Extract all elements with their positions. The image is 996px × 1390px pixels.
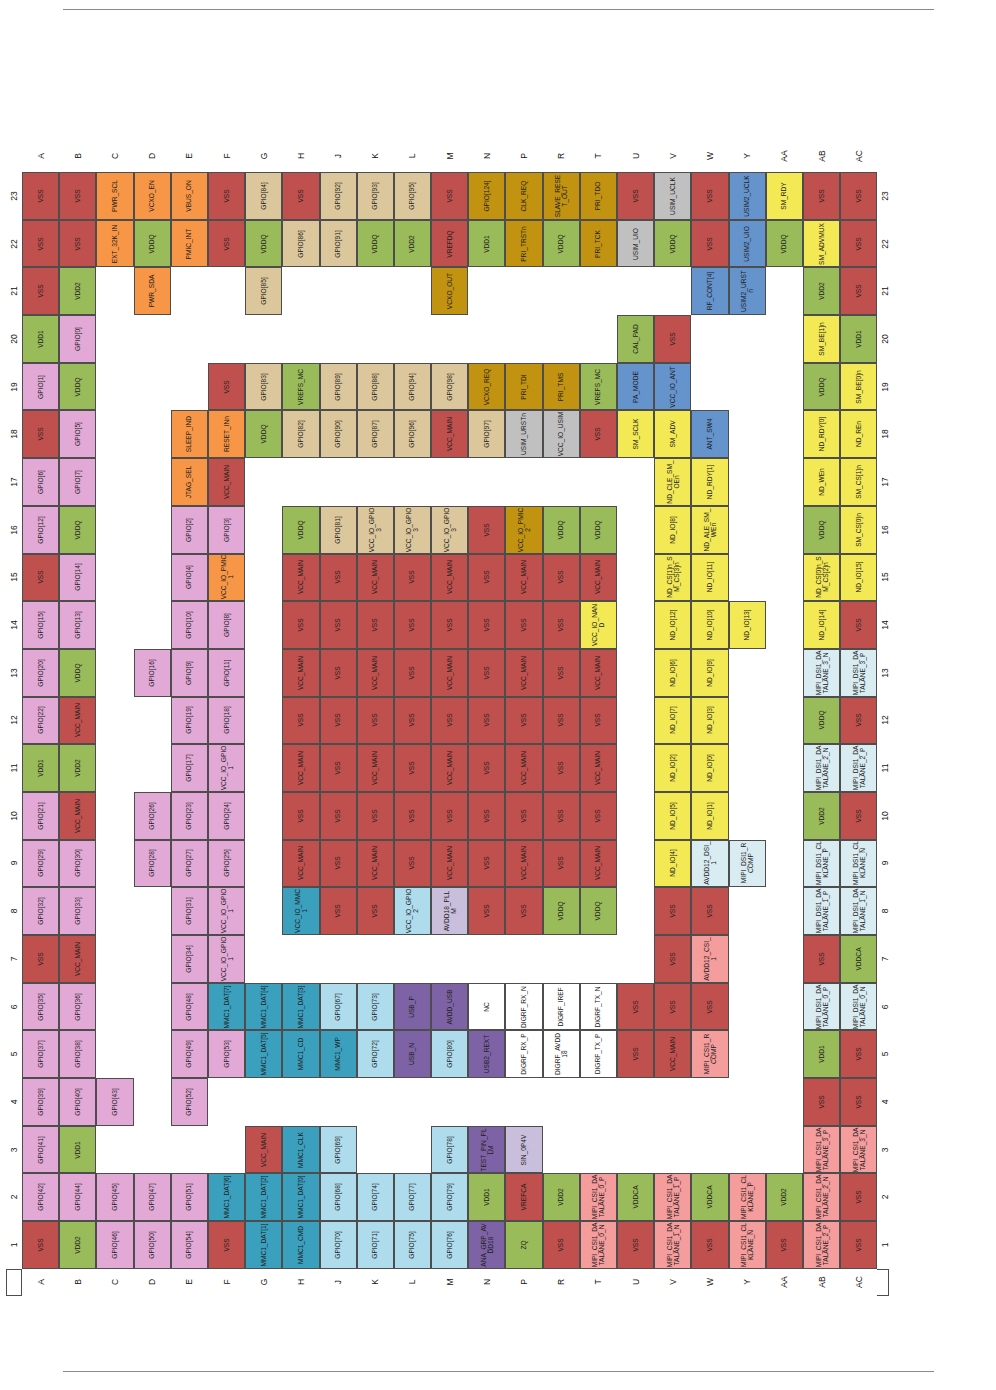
- ball-R23-label: SLAVE_RESET_OUT: [554, 173, 569, 218]
- ball-G22: VDDQ: [245, 220, 282, 268]
- ball-W5-label: MIPI_CSI1_RCOMP: [703, 1032, 718, 1077]
- ball-T2: MIPI_CSI1_DATALANE_0_P: [580, 1173, 617, 1221]
- row-header-left-12-label: 12: [10, 716, 19, 725]
- ball-V15-label: ND_CS[1]n_SM_CS[3]n: [665, 555, 680, 600]
- ball-K6: GPIO[73]: [357, 983, 394, 1031]
- ball-J13-label: VSS: [334, 650, 341, 695]
- ball-K5: GPIO[72]: [357, 1030, 394, 1078]
- ball-T15-label: VCC_MAIN: [595, 555, 602, 600]
- col-header-top-AA-label: AA: [780, 150, 789, 161]
- ball-V13: ND_IO[6]: [654, 649, 691, 697]
- ball-C22-label: EXT_32K_IN: [111, 221, 118, 266]
- ball-B23: VSS: [59, 172, 96, 220]
- ball-D9: GPIO[28]: [134, 840, 171, 888]
- col-header-top-N-label: N: [483, 153, 492, 159]
- col-header-bottom-A: A: [22, 1269, 59, 1296]
- ball-P11: VCC_MAIN: [505, 744, 542, 792]
- ball-W8-label: VSS: [706, 889, 713, 934]
- ball-C23: PWR_SCL: [96, 172, 133, 220]
- ball-AC6-label: MIPI_DSI1_DATALANE_0_N: [851, 984, 866, 1029]
- ball-V17: ND_CLE_SM_OEn: [654, 458, 691, 506]
- ball-T9: VCC_MAIN: [580, 840, 617, 888]
- col-header-top-T: T: [580, 140, 617, 172]
- ball-L5-label: USB_N: [409, 1032, 416, 1077]
- ball-D2: GPIO[47]: [134, 1173, 171, 1221]
- row-header-right-2: 2: [877, 1173, 892, 1221]
- col-header-bottom-AA-label: AA: [780, 1277, 789, 1288]
- ball-Y2-label: MIPI_CSI1_CLKLANE_P: [740, 1175, 755, 1220]
- ball-T13: VCC_MAIN: [580, 649, 617, 697]
- ball-F14: GPIO[8]: [208, 601, 245, 649]
- ball-Y9: MIPI_DSI1_RCOMP: [729, 840, 766, 888]
- ball-N5: USB2_REXT: [468, 1030, 505, 1078]
- ball-F14-label: GPIO[8]: [223, 603, 230, 648]
- col-header-top-E-label: E: [185, 153, 194, 159]
- ball-P1-label: ZQ: [520, 1222, 527, 1267]
- row-header-right-4: 4: [877, 1078, 892, 1126]
- ball-B21: VDD2: [59, 267, 96, 315]
- ball-H12: VSS: [282, 697, 319, 745]
- ball-H15-label: VCC_MAIN: [297, 555, 304, 600]
- col-header-bottom-V-label: V: [669, 1279, 678, 1285]
- ball-AB23: VSS: [803, 172, 840, 220]
- ballout-grid: AABBCCDDEEFFGGHHJJKKLLMMNNPPRRTTUUVVWWYY…: [6, 140, 892, 1296]
- ball-E16-label: GPIO[2]: [186, 507, 193, 552]
- ball-R12: VSS: [543, 697, 580, 745]
- ball-AB11-label: MIPI_DSI1_DATALANE_2_N: [814, 746, 829, 791]
- ball-L10: VSS: [394, 792, 431, 840]
- col-header-top-G: G: [245, 140, 282, 172]
- ball-H1-label: MMC1_CMD: [297, 1222, 304, 1267]
- ball-T13-label: VCC_MAIN: [595, 650, 602, 695]
- ball-L23: GPIO[95]: [394, 172, 431, 220]
- ball-E2: GPIO[51]: [171, 1173, 208, 1221]
- ball-A3: GPIO[41]: [22, 1126, 59, 1174]
- ball-F22-label: VSS: [223, 221, 230, 266]
- row-header-right-17: 17: [877, 458, 892, 506]
- ball-B9-label: GPIO[30]: [74, 841, 81, 886]
- col-header-top-U: U: [617, 140, 654, 172]
- ball-U5: VSS: [617, 1030, 654, 1078]
- ball-L12: VSS: [394, 697, 431, 745]
- ball-W23: VSS: [691, 172, 728, 220]
- ball-K11-label: VCC_MAIN: [372, 746, 379, 791]
- ball-P5-label: DIGRF_RX_P: [520, 1032, 527, 1077]
- ball-A5: GPIO[37]: [22, 1030, 59, 1078]
- ball-V12: ND_IO[7]: [654, 697, 691, 745]
- ball-AB3: MIPI_CSI1_DATALANE_3_P: [803, 1126, 840, 1174]
- ball-L18: GPIO[96]: [394, 410, 431, 458]
- ball-F5-label: GPIO[53]: [223, 1032, 230, 1077]
- ball-K9-label: VCC_MAIN: [372, 841, 379, 886]
- ball-A8: GPIO[32]: [22, 887, 59, 935]
- ball-W15: ND_IO[11]: [691, 554, 728, 602]
- ball-B3: VDD1: [59, 1126, 96, 1174]
- ball-U18-label: SM_SCLK: [632, 412, 639, 457]
- ball-N8: VSS: [468, 887, 505, 935]
- ball-F6: MMC1_DAT[7]: [208, 983, 245, 1031]
- ball-AC23-label: VSS: [855, 173, 862, 218]
- ball-N18: GPIO[97]: [468, 410, 505, 458]
- ball-J2: GPIO[68]: [320, 1173, 357, 1221]
- row-header-left-8-label: 8: [10, 909, 19, 914]
- ball-A2: GPIO[42]: [22, 1173, 59, 1221]
- ball-B1: VDD2: [59, 1221, 96, 1269]
- ball-D13: GPIO[16]: [134, 649, 171, 697]
- ball-U2-label: VDDCA: [632, 1175, 639, 1220]
- ball-B14-label: GPIO[13]: [74, 603, 81, 648]
- ball-A21: VSS: [22, 267, 59, 315]
- ball-Y22-label: USIM2_UIO: [743, 221, 750, 266]
- row-header-left-8: 8: [6, 887, 22, 935]
- ball-B20-label: GPIO[0]: [74, 316, 81, 361]
- ball-K5-label: GPIO[72]: [372, 1032, 379, 1077]
- ball-B12-label: VCC_MAIN: [74, 698, 81, 743]
- ball-F13-label: GPIO[11]: [223, 650, 230, 695]
- ball-L23-label: GPIO[95]: [409, 173, 416, 218]
- ball-J12: VSS: [320, 697, 357, 745]
- ball-P10: VSS: [505, 792, 542, 840]
- ball-Y21-label: USIM2_URSTn: [740, 269, 755, 314]
- ball-U18: SM_SCLK: [617, 410, 654, 458]
- ball-F18-label: RESET_INn: [223, 412, 230, 457]
- ball-H18: GPIO[82]: [282, 410, 319, 458]
- ball-AC19: SM_BE[0]n: [840, 363, 877, 411]
- ball-P14-label: VSS: [520, 603, 527, 648]
- ball-G21: GPIO[85]: [245, 267, 282, 315]
- ball-H2: MMC1_DAT[0]: [282, 1173, 319, 1221]
- ball-R19-label: PRI_TMS: [558, 364, 565, 409]
- ball-M6-label: AVDD_USB: [446, 984, 453, 1029]
- ball-N14-label: VSS: [483, 603, 490, 648]
- row-header-left-2-label: 2: [10, 1195, 19, 1200]
- ball-W21-label: RF_CONT[4]: [706, 269, 713, 314]
- ball-A15-label: VSS: [37, 555, 44, 600]
- ball-A18-label: VSS: [37, 412, 44, 457]
- ball-R10-label: VSS: [558, 793, 565, 838]
- ball-A8-label: GPIO[32]: [37, 889, 44, 934]
- ball-H5-label: MMC1_CD: [297, 1032, 304, 1077]
- ball-AC7: VDDCA: [840, 935, 877, 983]
- ball-T15: VCC_MAIN: [580, 554, 617, 602]
- col-header-top-M-label: M: [445, 152, 454, 159]
- ball-B2-label: GPIO[44]: [74, 1175, 81, 1220]
- row-header-left-5-label: 5: [10, 1052, 19, 1057]
- ball-E17-label: JTAG_SEL: [186, 459, 193, 504]
- col-header-bottom-A-label: A: [36, 1279, 45, 1285]
- ball-J16-label: GPIO[81]: [334, 507, 341, 552]
- ball-K8: VSS: [357, 887, 394, 935]
- ball-B19: VDDQ: [59, 363, 96, 411]
- ball-L11: VSS: [394, 744, 431, 792]
- ball-A7: VSS: [22, 935, 59, 983]
- ball-J12-label: VSS: [334, 698, 341, 743]
- ball-H12-label: VSS: [297, 698, 304, 743]
- ball-AA23: SM_RDY: [766, 172, 803, 220]
- ball-F22: VSS: [208, 220, 245, 268]
- ball-V20-label: VSS: [669, 316, 676, 361]
- ball-P23-label: CLK_REQ: [520, 173, 527, 218]
- ball-E18: SLEEP_IND: [171, 410, 208, 458]
- ball-V1: MIPI_CSI1_DATALANE_1_N: [654, 1221, 691, 1269]
- ball-W16: ND_ALE_SM_WEn: [691, 506, 728, 554]
- row-header-right-11-label: 11: [881, 764, 890, 773]
- ball-B22: VSS: [59, 220, 96, 268]
- ball-G1-label: MMC1_DAT[1]: [260, 1222, 267, 1267]
- ball-H1: MMC1_CMD: [282, 1221, 319, 1269]
- ball-P8-label: VSS: [520, 889, 527, 934]
- ball-L22: VDD2: [394, 220, 431, 268]
- row-header-left-23: 23: [6, 172, 22, 220]
- ball-A13: GPIO[20]: [22, 649, 59, 697]
- ball-M13-label: VCC_MAIN: [446, 650, 453, 695]
- ball-A4-label: GPIO[39]: [37, 1079, 44, 1124]
- ball-F16-label: GPIO[3]: [223, 507, 230, 552]
- ball-A11: VDD1: [22, 744, 59, 792]
- ball-AC1-label: VSS: [855, 1222, 862, 1267]
- ball-J22-label: GPIO[91]: [334, 221, 341, 266]
- ball-L11-label: VSS: [409, 746, 416, 791]
- col-header-bottom-R-label: R: [557, 1279, 566, 1285]
- ball-B10-label: VCC_MAIN: [74, 793, 81, 838]
- col-header-bottom-U: U: [617, 1269, 654, 1296]
- ball-E14-label: GPIO[10]: [186, 603, 193, 648]
- ball-N10-label: VSS: [483, 793, 490, 838]
- row-header-right-6-label: 6: [881, 1004, 890, 1009]
- row-header-left-14: 14: [6, 601, 22, 649]
- ball-M14: VSS: [431, 601, 468, 649]
- col-header-top-F-label: F: [222, 153, 231, 158]
- row-header-left-6: 6: [6, 983, 22, 1031]
- ball-J16: GPIO[81]: [320, 506, 357, 554]
- col-header-bottom-C-label: C: [111, 1279, 120, 1285]
- ball-T1-label: MIPI_CSI1_DATALANE_0_N: [591, 1222, 606, 1267]
- col-header-bottom-T-label: T: [594, 1280, 603, 1285]
- col-header-bottom-F: F: [208, 1269, 245, 1296]
- ball-P9: VCC_MAIN: [505, 840, 542, 888]
- ball-L15: VSS: [394, 554, 431, 602]
- ball-AB4-label: VSS: [818, 1079, 825, 1124]
- ball-L9: VSS: [394, 840, 431, 888]
- ball-AB22-label: SM_ADVMUX: [818, 221, 825, 266]
- ball-M5-label: GPIO[80]: [446, 1032, 453, 1077]
- col-header-top-Y-label: Y: [743, 153, 752, 159]
- col-header-top-K: K: [357, 140, 394, 172]
- ball-R11-label: VSS: [558, 746, 565, 791]
- ball-W8: VSS: [691, 887, 728, 935]
- ball-AB9-label: MIPI_DSI1_CLKLANE_P: [814, 841, 829, 886]
- ball-U23: VSS: [617, 172, 654, 220]
- ball-F8-label: VCC_IO_GPIO1: [219, 889, 234, 934]
- ball-AB15: ND_CS[0]n_SM_CS[2]n: [803, 554, 840, 602]
- ball-M16-label: VCC_IO_GPIO3: [442, 507, 457, 552]
- ball-J19-label: GPIO[89]: [334, 364, 341, 409]
- ball-F7: VCC_IO_GPIO1: [208, 935, 245, 983]
- ball-A23-label: VSS: [37, 173, 44, 218]
- ball-AA1: VSS: [766, 1221, 803, 1269]
- ball-A10-label: GPIO[21]: [37, 793, 44, 838]
- ball-P13: VCC_MAIN: [505, 649, 542, 697]
- row-header-right-22-label: 22: [881, 239, 890, 248]
- ball-AB13: MIPI_DSI1_DATALANE_3_N: [803, 649, 840, 697]
- ball-T6-label: DIGRF_TX_N: [595, 984, 602, 1029]
- col-header-top-G-label: G: [259, 153, 268, 160]
- ball-P9-label: VCC_MAIN: [520, 841, 527, 886]
- ball-T19-label: VREFS_MC: [595, 364, 602, 409]
- ball-AB10: VDD2: [803, 792, 840, 840]
- row-header-right-2-label: 2: [881, 1195, 890, 1200]
- ball-B1-label: VDD2: [74, 1222, 81, 1267]
- ball-R15-label: VSS: [558, 555, 565, 600]
- row-header-left-3: 3: [6, 1126, 22, 1174]
- ball-H13-label: VCC_MAIN: [297, 650, 304, 695]
- ball-V8-label: VSS: [669, 889, 676, 934]
- ball-H3: MMC1_CLK: [282, 1126, 319, 1174]
- ball-D22-label: VDDQ: [148, 221, 155, 266]
- ball-F19: VSS: [208, 363, 245, 411]
- ball-K1-label: GPIO[71]: [372, 1222, 379, 1267]
- col-header-bottom-Y-label: Y: [743, 1279, 752, 1285]
- row-header-right-6: 6: [877, 983, 892, 1031]
- ball-W1-label: VSS: [706, 1222, 713, 1267]
- ball-K12-label: VSS: [372, 698, 379, 743]
- ball-U23-label: VSS: [632, 173, 639, 218]
- row-header-left-9: 9: [6, 840, 22, 888]
- ball-C23-label: PWR_SCL: [111, 173, 118, 218]
- ball-F12: GPIO[18]: [208, 697, 245, 745]
- ball-M8: AVDD18_PLLM: [431, 887, 468, 935]
- ball-W2-label: VDDCA: [706, 1175, 713, 1220]
- ball-R8-label: VDDQ: [558, 889, 565, 934]
- ball-AC3-label: MIPI_CSI1_DATALANE_3_N: [851, 1127, 866, 1172]
- ball-D2-label: GPIO[47]: [148, 1175, 155, 1220]
- ball-N22: VDD1: [468, 220, 505, 268]
- ball-AC9-label: MIPI_DSI1_CLKLANE_N: [851, 841, 866, 886]
- row-header-left-17: 17: [6, 458, 22, 506]
- ball-H11: VCC_MAIN: [282, 744, 319, 792]
- ball-K18-label: GPIO[87]: [372, 412, 379, 457]
- ball-V16: ND_IO[8]: [654, 506, 691, 554]
- col-header-top-U-label: U: [631, 153, 640, 159]
- row-header-right-14-label: 14: [881, 620, 890, 629]
- ball-P18-label: USIM_URSTn: [520, 412, 527, 457]
- ball-V18-label: SM_ADV: [669, 412, 676, 457]
- ball-AC20-label: VDD1: [855, 316, 862, 361]
- ball-AB19: VDDQ: [803, 363, 840, 411]
- ball-K8-label: VSS: [372, 889, 379, 934]
- ball-J11-label: VSS: [334, 746, 341, 791]
- ball-G6-label: MMC1_DAT[4]: [260, 984, 267, 1029]
- ball-J2-label: GPIO[68]: [334, 1175, 341, 1220]
- ball-N15-label: VSS: [483, 555, 490, 600]
- ball-AB17-label: ND_WEn: [818, 459, 825, 504]
- ball-A20-label: VDD1: [37, 316, 44, 361]
- ball-AC4-label: VSS: [855, 1079, 862, 1124]
- ball-J18-label: GPIO[90]: [334, 412, 341, 457]
- ball-K22-label: VDDQ: [372, 221, 379, 266]
- ball-AB19-label: VDDQ: [818, 364, 825, 409]
- ball-T1: MIPI_CSI1_DATALANE_0_N: [580, 1221, 617, 1269]
- ball-R13-label: VSS: [558, 650, 565, 695]
- ball-D21: PWR_SDA: [134, 267, 171, 315]
- ball-V11: ND_IO[2]: [654, 744, 691, 792]
- ball-G19-label: GPIO[83]: [260, 364, 267, 409]
- ball-W11: ND_IO[0]: [691, 744, 728, 792]
- ball-R14: VSS: [543, 601, 580, 649]
- ball-T16: VDDQ: [580, 506, 617, 554]
- ball-A6-label: GPIO[35]: [37, 984, 44, 1029]
- ball-G22-label: VDDQ: [260, 221, 267, 266]
- ball-L9-label: VSS: [409, 841, 416, 886]
- ball-A12-label: GPIO[22]: [37, 698, 44, 743]
- ball-AC23: VSS: [840, 172, 877, 220]
- ball-N23-label: GPIO[124]: [483, 173, 490, 218]
- ball-E5-label: GPIO[49]: [186, 1032, 193, 1077]
- ball-L5: USB_N: [394, 1030, 431, 1078]
- ball-D22: VDDQ: [134, 220, 171, 268]
- ball-AC7-label: VDDCA: [855, 936, 862, 981]
- row-header-right-8-label: 8: [881, 909, 890, 914]
- ball-P19-label: PRI_TDI: [520, 364, 527, 409]
- ball-B22-label: VSS: [74, 221, 81, 266]
- ball-W9-label: AVDD12_DSI_1: [703, 841, 718, 886]
- col-header-top-J-label: J: [334, 154, 343, 158]
- col-header-top-W-label: W: [706, 152, 715, 160]
- ball-R1-label: VSS: [558, 1222, 565, 1267]
- ball-H9-label: VCC_MAIN: [297, 841, 304, 886]
- ball-B7: VCC_MAIN: [59, 935, 96, 983]
- ball-R5: DIGRF_AVDD18: [543, 1030, 580, 1078]
- row-header-left-1-label: 1: [10, 1243, 19, 1248]
- ball-AC19-label: SM_BE[0]n: [855, 364, 862, 409]
- ball-A6: GPIO[35]: [22, 983, 59, 1031]
- col-header-top-A-label: A: [36, 153, 45, 159]
- ball-N14: VSS: [468, 601, 505, 649]
- col-header-top-D: D: [134, 140, 171, 172]
- row-header-right-19: 19: [877, 363, 892, 411]
- row-header-left-10: 10: [6, 792, 22, 840]
- ball-T12: VSS: [580, 697, 617, 745]
- ball-L2-label: GPIO[77]: [409, 1175, 416, 1220]
- ball-M21-label: VCXO_OUT: [446, 269, 453, 314]
- ball-J10-label: VSS: [334, 793, 341, 838]
- col-header-bottom-K: K: [357, 1269, 394, 1296]
- ball-U19-label: PA_MODE: [632, 364, 639, 409]
- ball-D1: GPIO[50]: [134, 1221, 171, 1269]
- ball-E13-label: GPIO[9]: [186, 650, 193, 695]
- ball-B21-label: VDD2: [74, 269, 81, 314]
- ball-N3: TEST_PIN_PLLM: [468, 1126, 505, 1174]
- ball-M11: VCC_MAIN: [431, 744, 468, 792]
- ball-N6-label: NC: [483, 984, 490, 1029]
- ball-F9-label: GPIO[25]: [223, 841, 230, 886]
- ball-AC18-label: ND_REn: [855, 412, 862, 457]
- ball-H23-label: VSS: [297, 173, 304, 218]
- row-header-left-20: 20: [6, 315, 22, 363]
- col-header-bottom-AA: AA: [766, 1269, 803, 1296]
- ball-E9-label: GPIO[27]: [186, 841, 193, 886]
- ball-L8-label: VCC_IO_GPIO2: [405, 889, 420, 934]
- ball-L14: VSS: [394, 601, 431, 649]
- col-header-bottom-M-label: M: [445, 1279, 454, 1286]
- ball-V5-label: VCC_MAIN: [669, 1032, 676, 1077]
- ball-J5: MMC1_WP: [320, 1030, 357, 1078]
- ball-A20: VDD1: [22, 315, 59, 363]
- ball-J15: VSS: [320, 554, 357, 602]
- ball-B13-label: VDDQ: [74, 650, 81, 695]
- row-header-right-10-label: 10: [881, 811, 890, 820]
- ball-AB16: VDDQ: [803, 506, 840, 554]
